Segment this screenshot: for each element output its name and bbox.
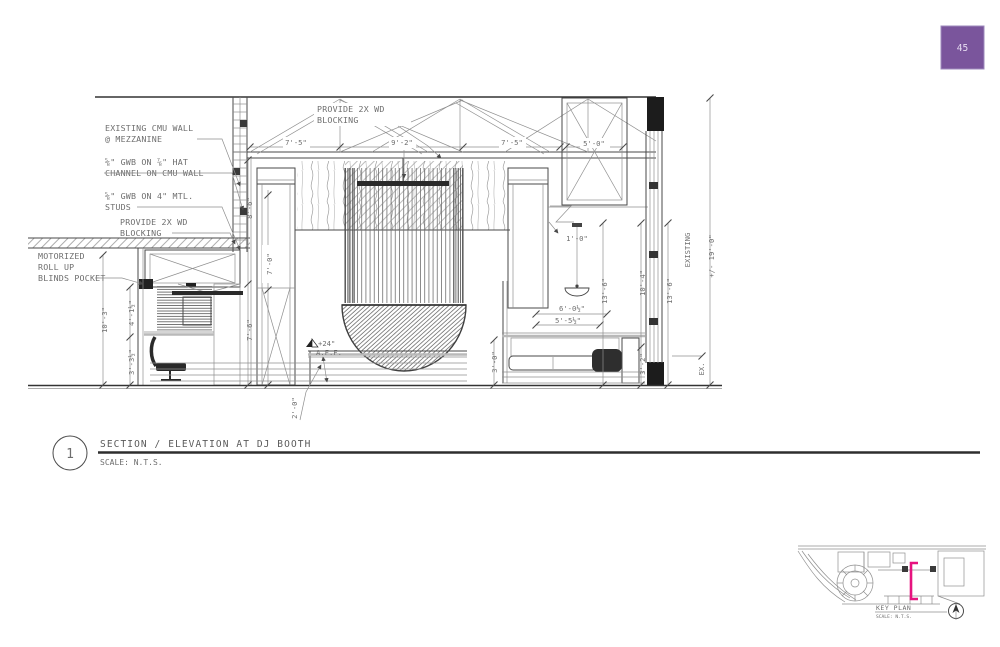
note-blinds-1: MOTORIZED — [38, 251, 85, 261]
dim-step: 2'-0" — [290, 397, 299, 419]
mezzanine-floor — [28, 238, 250, 248]
dim-pendant-drop: 1'-0" — [566, 234, 588, 243]
dim-right-b: 10'-4" — [638, 270, 647, 296]
page-number: 45 — [957, 43, 968, 54]
dim-wall-lower: 7'-6" — [245, 319, 254, 341]
drawing-scale: SCALE: N.T.S. — [100, 458, 163, 467]
floor-line — [28, 386, 722, 389]
dim-overall: +/- 19'-0" — [707, 234, 716, 277]
detail-number: 1 — [66, 447, 74, 462]
key-plan-label: KEY PLAN — [876, 604, 911, 612]
dim-wall-upper: 8'-6" — [245, 197, 254, 219]
dim-top-right: 7'-5" — [501, 138, 523, 147]
title-block: 1 SECTION / ELEVATION AT DJ BOOTH SCALE:… — [53, 436, 980, 470]
dome-canopy — [342, 305, 466, 371]
north-arrow-icon — [949, 602, 964, 620]
label-aff-1: +24" — [318, 339, 335, 348]
note-blinds-2: ROLL UP — [38, 262, 74, 272]
label-existing: EXISTING — [683, 233, 692, 268]
dim-banquette-left: 3'-0" — [490, 351, 499, 373]
note-blocking-1: PROVIDE 2X WD — [120, 217, 188, 227]
dim-left-outer: 10'-3" — [100, 307, 109, 333]
dj-chair — [151, 337, 186, 380]
dim-left-upper: 4'-1½" — [127, 300, 136, 326]
note-gwb-studs-1: ⅝" GWB ON 4" MTL. — [105, 191, 193, 201]
blinds-pocket — [139, 250, 240, 289]
drawing-sheet: 5'-0" — [0, 0, 1000, 647]
right-pilaster — [508, 168, 548, 308]
note-gwb-hat-1: ⅝" GWB ON ⅞" HAT — [105, 157, 188, 167]
dim-left-lower: 3'-3½" — [127, 349, 136, 375]
note-cmu-1: EXISTING CMU WALL — [105, 123, 193, 133]
label-aff-2: A.F.F. — [316, 348, 342, 357]
dj-booth — [138, 248, 243, 385]
note-gwb-studs-2: STUDS — [105, 202, 131, 212]
banquette — [502, 281, 645, 383]
dim-banquette-upper: 6'-0½" — [559, 304, 585, 313]
section-elevation-sheet: 5'-0" — [0, 0, 1000, 647]
key-plan-scale: SCALE: N.T.S. — [876, 614, 912, 620]
dim-banquette-right: 3'-2" — [638, 353, 647, 375]
note-top-blocking-1: PROVIDE 2X WD — [317, 104, 385, 114]
dim-right-c: 13'-6" — [665, 278, 674, 304]
dim-pilaster: 7'-0" — [265, 253, 274, 275]
curtain — [345, 158, 463, 303]
section-drawing: 5'-0" — [28, 95, 722, 421]
right-opening — [548, 206, 648, 222]
key-plan: KEY PLAN SCALE: N.T.S. — [798, 546, 986, 620]
label-ex: EX. — [697, 363, 706, 376]
dim-banquette-lower: 5'-5½" — [555, 316, 581, 325]
drawing-title: SECTION / ELEVATION AT DJ BOOTH — [100, 439, 311, 450]
note-top-blocking-2: BLOCKING — [317, 115, 359, 125]
page-number-badge: 45 — [941, 26, 984, 69]
dim-top-mid: 9'-2" — [391, 138, 413, 147]
note-cmu-2: @ MEZZANINE — [105, 134, 162, 144]
key-plan-highlight — [911, 563, 918, 599]
dim-top-left: 7'-5" — [285, 138, 307, 147]
dim-box-width: 5'-0" — [583, 139, 605, 148]
note-blocking-2: BLOCKING — [120, 228, 162, 238]
dim-right-a: 13'-6" — [600, 278, 609, 304]
